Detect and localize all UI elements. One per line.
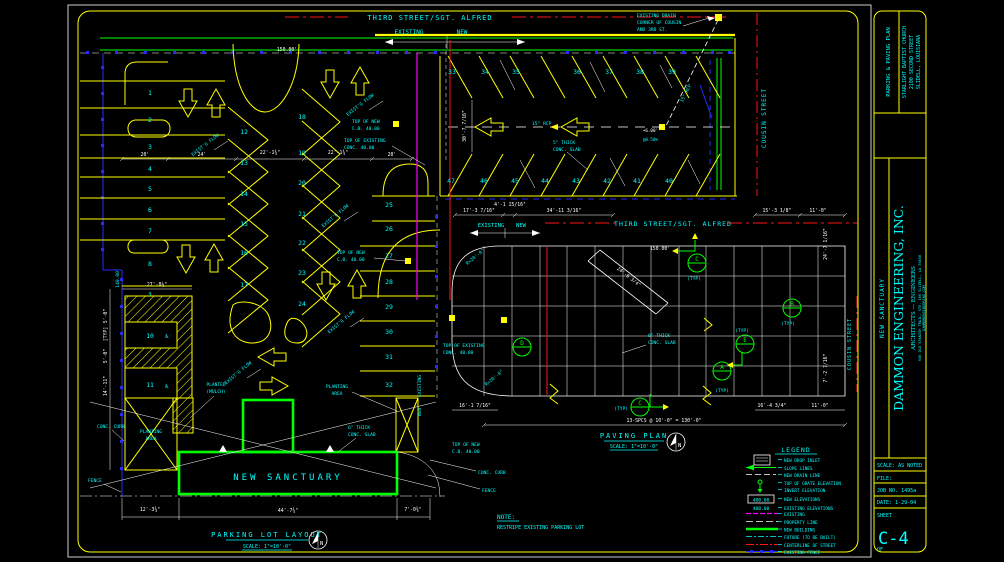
- legend: LEGEND 400.00 400.00 NEW DROP INLET: [746, 446, 841, 556]
- dim-label: 11'-0": [809, 208, 826, 214]
- slab-label: 5" THICK: [553, 140, 575, 146]
- north-arrow: N: [320, 541, 323, 547]
- stall-number: 47: [447, 177, 455, 185]
- firm-website: DAMMONENGINEERING.COM: [922, 284, 926, 330]
- scale-field: SCALE: AS NOTED: [877, 463, 922, 469]
- detail-d: D: [513, 338, 531, 356]
- dim-label: 11'-0": [811, 403, 828, 409]
- stall-number: 10: [146, 332, 154, 340]
- stall-number: 38: [636, 68, 644, 76]
- drawing-canvas[interactable]: THIRD STREET/SGT. ALFRED EXISTING NEW 15…: [0, 0, 1004, 562]
- street-label: THIRD STREET/SGT. ALFRED: [614, 220, 732, 228]
- north-arrow: N: [678, 443, 681, 449]
- stall-number: 20: [298, 179, 306, 187]
- dim-label: 16'-1 7/16": [459, 403, 491, 409]
- street-cousin-top: COUSIN STREET: [700, 13, 768, 196]
- elev-label: +6.00': [643, 128, 658, 133]
- note-body: RESTRIPE EXISTING PARKING LOT: [497, 525, 584, 531]
- drain-callout: EXISTING DRAIN CORNER OF COUSIN AND 3RD …: [637, 13, 722, 142]
- svg-text:A: A: [720, 364, 724, 371]
- dim-label: 5'-0": [103, 309, 109, 324]
- legend-title: LEGEND: [781, 446, 810, 454]
- date-field: DATE: 1-29-04: [877, 500, 916, 506]
- plan-title: PARKING LOT LAYOUT: [211, 531, 323, 539]
- stall-lines-left: [80, 81, 225, 286]
- dim-label: 13-SPCS @ 10'-0" = 130'-0": [626, 418, 701, 424]
- fence-marks-top: [86, 51, 731, 54]
- file-field: FILE:: [877, 476, 892, 482]
- stall-number: 36: [573, 68, 581, 76]
- flow-label: EXIST'G FLOW: [345, 92, 375, 117]
- curb-label: CONC. CURB: [478, 470, 506, 476]
- dim-label: 16'-4 3/4": [758, 403, 787, 409]
- stall-number: 14: [240, 190, 248, 198]
- cad-sheet: THIRD STREET/SGT. ALFRED EXISTING NEW 15…: [0, 0, 1004, 562]
- svg-text:R=20'-0": R=20'-0": [484, 369, 505, 388]
- stall-number: 45: [511, 177, 519, 185]
- stall-number: 40: [665, 177, 673, 185]
- legend-labels: NEW DROP INLET SLOPE LINES NEW DRAIN LIN…: [778, 458, 841, 556]
- svg-text:E: E: [743, 337, 747, 344]
- dim-label: 20': [388, 152, 397, 158]
- planting-label: PLANTING: [326, 384, 348, 390]
- stall-number: 44: [541, 177, 549, 185]
- elev-callout: TOP OF EXISTING: [344, 138, 386, 144]
- stall-number: 34: [481, 68, 489, 76]
- boundary-label: NEW: [417, 408, 423, 417]
- svg-text:D: D: [520, 340, 524, 347]
- stall-lines-right: [360, 196, 438, 398]
- stall-number: 42: [603, 177, 611, 185]
- street-cousin-lower: COUSIN STREET: [847, 296, 857, 392]
- stall-number: 21: [298, 210, 306, 218]
- sheet-number: C-4: [878, 529, 909, 549]
- svg-text:(TYP): (TYP): [614, 406, 628, 412]
- curb-label: CONC. CURB: [97, 424, 125, 430]
- dim-label: 44'-7¾": [278, 508, 298, 514]
- existing-label: EXISTING: [478, 223, 505, 229]
- stall-number: 37: [605, 68, 613, 76]
- flow-label: EXIST'G FLOW: [224, 360, 253, 386]
- elev-callout: TOP OF NEW: [352, 119, 380, 125]
- stall-number: 30: [385, 328, 393, 336]
- flow-label: EXIST'G FLOW: [321, 203, 350, 229]
- svg-text:(TYP): (TYP): [735, 328, 749, 334]
- client-city: SLIDELL, LOUISIANA: [916, 35, 922, 89]
- svg-text:(TYP): (TYP): [715, 388, 729, 394]
- elev-callout: CONC. 40.00: [344, 145, 375, 151]
- building-label: NEW SANCTUARY: [233, 473, 342, 483]
- fence-label: FENCE: [88, 478, 102, 484]
- stall-number: 16: [240, 249, 248, 257]
- handicap-icon: ♿: [165, 382, 169, 390]
- elev-callout: C.B. 40.00: [337, 257, 365, 263]
- svg-text:CONC. 40.00: CONC. 40.00: [443, 350, 474, 356]
- stall-number: 39: [668, 68, 676, 76]
- note-block: NOTE: RESTRIPE EXISTING PARKING LOT: [497, 514, 584, 531]
- street-label: THIRD STREET/SGT. ALFRED: [367, 14, 492, 22]
- legend-new-elev: 400.00: [753, 498, 770, 504]
- drain-note: CORNER OF COUSIN: [637, 20, 681, 26]
- dim-label: 27'-8½": [147, 281, 167, 288]
- plan-scale: SCALE: 1"=10'-0": [243, 544, 291, 550]
- svg-text:INVERT ELEVATION: INVERT ELEVATION: [784, 488, 826, 494]
- stall-number: 12: [240, 128, 248, 136]
- stall-number: 25: [385, 201, 393, 209]
- dim-label: 20': [141, 152, 150, 158]
- svg-text:R=20'-0": R=20'-0": [465, 248, 486, 267]
- client-name: STARLIGHT BAPTIST CHURCH: [902, 26, 908, 98]
- stall-number: 23: [298, 269, 306, 277]
- detail-b: B (TYP): [781, 299, 801, 327]
- svg-text:SLOPE LINES: SLOPE LINES: [784, 466, 813, 472]
- stall-number: 24: [298, 300, 306, 308]
- stall-number: 28: [385, 278, 393, 286]
- stall-number: 6: [148, 206, 152, 214]
- stall-number: 32: [385, 381, 393, 389]
- legend-exist-elev: 400.00: [753, 506, 770, 512]
- planting-label: PLANTING: [140, 429, 162, 435]
- street-third-top: THIRD STREET/SGT. ALFRED EXISTING NEW 15…: [80, 14, 737, 54]
- stall-number: 13: [240, 159, 248, 167]
- firm-type: ARCHITECTS — ENGINEERS: [911, 266, 917, 351]
- stall-number: 19: [298, 149, 306, 157]
- svg-text:NEW DRAIN LINE: NEW DRAIN LINE: [784, 473, 821, 479]
- planting-label: AREA: [145, 436, 156, 442]
- handicap-icon: ♿: [165, 332, 169, 340]
- stall-number: 17: [240, 281, 248, 289]
- detail-e: E (TYP): [735, 328, 754, 353]
- svg-text:CONC. SLAB: CONC. SLAB: [648, 340, 676, 346]
- dim-label: 34'-11 3/16": [547, 208, 582, 214]
- dim-label: 22'-1¾": [260, 150, 280, 156]
- stall-number: 2: [148, 116, 152, 124]
- stall-number: 31: [385, 353, 393, 361]
- svg-text:C.B. 40.00: C.B. 40.00: [452, 449, 480, 455]
- dim-label: 17'-3 7/16": [463, 208, 495, 214]
- elev-callout: TOP OF NEW: [337, 250, 365, 256]
- detail-markers: C (TYP) B (TYP) D E (TYP) A (TYP): [513, 233, 801, 416]
- title-block: PARKING & PAVING PLAN STARLIGHT BAPTIST …: [874, 11, 926, 553]
- stall-number: 46: [480, 177, 488, 185]
- dim-label: 140.00': [115, 268, 121, 287]
- stall-number: 15: [240, 220, 248, 228]
- stall-number: 22: [298, 239, 306, 247]
- dim-label: 24'-7 1/16": [823, 228, 829, 260]
- dim-label: 14'-11": [103, 376, 109, 396]
- new-sanctuary-building: NEW SANCTUARY: [179, 400, 440, 497]
- dim-label: [TYP]: [103, 327, 109, 341]
- stall-number: 29: [385, 303, 393, 311]
- svg-text:NEW DROP INLET: NEW DROP INLET: [784, 458, 821, 464]
- stall-number: 7: [148, 227, 152, 235]
- svg-text:C: C: [638, 400, 642, 407]
- planted-label: (MULCH): [206, 389, 225, 395]
- dim-label: 4'-1 15/16": [494, 202, 526, 208]
- drain-note: EXISTING DRAIN: [637, 13, 676, 19]
- stall-number: 5: [148, 185, 152, 193]
- detail-c1: C (TYP): [687, 254, 706, 282]
- new-label: NEW: [516, 223, 527, 229]
- stall-number: 26: [385, 225, 393, 233]
- fence-label: FENCE: [482, 488, 496, 494]
- stall-number: 9: [148, 292, 151, 298]
- detail-a: A (TYP): [713, 362, 731, 394]
- firm-name: DAMMON ENGINEERING, INC.: [891, 205, 906, 411]
- svg-text:TOP OF GRATE ELEVATION: TOP OF GRATE ELEVATION: [784, 481, 841, 487]
- plan1-title: PARKING LOT LAYOUT SCALE: 1"=10'-0" N: [211, 531, 327, 550]
- stall-number: 18: [298, 113, 306, 121]
- traffic-arrows: [177, 67, 369, 395]
- svg-text:(TYP): (TYP): [687, 276, 701, 282]
- stall-number: 33: [448, 68, 456, 76]
- dim-label: 15'-3 1/8": [763, 208, 792, 214]
- slope-label: @0.50%: [643, 137, 659, 142]
- slab-label: 6" THICK: [348, 425, 370, 431]
- dim-label: 150.00': [650, 246, 670, 252]
- elev-callout: C.B. 40.00: [352, 126, 380, 132]
- svg-text:(TYP): (TYP): [781, 321, 795, 327]
- svg-text:NEW BUILDING: NEW BUILDING: [784, 528, 815, 534]
- slab-label: CONC. SLAB: [348, 432, 376, 438]
- drawing-title: NEW SANCTUARY: [879, 278, 886, 338]
- project-title: PARKING & PAVING PLAN: [886, 27, 892, 97]
- sheet-label: SHEET: [877, 513, 892, 519]
- stall-number: 3: [148, 143, 152, 151]
- svg-text:NEW ELEVATIONS: NEW ELEVATIONS: [784, 497, 821, 503]
- svg-text:CENTERLINE OF STREET: CENTERLINE OF STREET: [784, 543, 836, 549]
- detail-c2: C (TYP): [614, 398, 649, 416]
- stall-number: 35: [512, 68, 520, 76]
- svg-text:EXISTING: EXISTING: [784, 512, 805, 518]
- svg-text:6" THICK: 6" THICK: [648, 333, 670, 339]
- plan-scale: SCALE: 1"=10'-0": [610, 444, 658, 450]
- plan2-title: PAVING PLAN SCALE: 1"=10'-0" N: [600, 432, 685, 451]
- dim-150: 150.00': [277, 47, 297, 53]
- svg-text:EXISTING ELEVATIONS: EXISTING ELEVATIONS: [784, 506, 834, 512]
- boundary-label: EXISTING: [417, 375, 423, 397]
- svg-text:EXISTING FENCE: EXISTING FENCE: [784, 550, 821, 556]
- dim-label: 5'-0": [103, 349, 109, 364]
- dim-label: 12'-3¾": [140, 507, 160, 513]
- stall-stripes-top: [448, 56, 720, 98]
- svg-text:TOP OF EXISTING: TOP OF EXISTING: [443, 343, 485, 349]
- svg-text:C: C: [695, 256, 699, 263]
- stall-number: 11: [146, 381, 154, 389]
- svg-text:PROPERTY LINE: PROPERTY LINE: [784, 520, 818, 526]
- stall-number: 41: [633, 177, 641, 185]
- top-dimensions: 17'-3 7/16" 4'-1 15/16" 34'-11 3/16" 15'…: [453, 202, 847, 217]
- sheet-of: OF: [877, 547, 883, 553]
- plan-title: PAVING PLAN: [600, 432, 668, 440]
- planting-label: AREA: [331, 391, 342, 397]
- dim-label: 7'-2 7/16": [823, 353, 829, 382]
- client-address: 2100 SECOND STREET: [909, 35, 915, 89]
- svg-text:B: B: [790, 301, 794, 308]
- note-heading: NOTE:: [497, 514, 515, 521]
- svg-text:TOP OF NEW: TOP OF NEW: [452, 442, 480, 448]
- joint-grid: [452, 246, 845, 396]
- rcp-label: 15" RCP: [532, 121, 552, 127]
- parking-layout: NEW SANCTUARY 20' 24' 22'-1¾" 22'-1¾" 20…: [80, 44, 506, 550]
- planted-label: PLANTED: [206, 382, 226, 388]
- legend-symbols: 400.00 400.00: [746, 455, 778, 553]
- stall-number: 4: [148, 165, 152, 173]
- stall-number: 8: [148, 260, 152, 268]
- stall-stripes-bottom: [448, 154, 720, 196]
- job-field: JOB NO. 1495a: [877, 488, 916, 494]
- stall-number: 43: [572, 177, 580, 185]
- restripe-marks: [500, 60, 700, 188]
- dim-label: 7'-0¾": [404, 507, 421, 513]
- svg-text:FUTURE (TO BE BUILT): FUTURE (TO BE BUILT): [784, 535, 836, 541]
- stall-number: 27: [385, 252, 393, 260]
- dim-label: 30'-7 7/16": [462, 110, 468, 142]
- paving-plan: THIRD STREET/SGT. ALFRED EXISTING NEW 17…: [443, 202, 857, 455]
- stall-number: 1: [148, 89, 152, 97]
- street-label: COUSIN STREET: [761, 88, 768, 148]
- drain-note: AND 3RD ST.: [637, 27, 667, 33]
- svg-text:COUSIN STREET: COUSIN STREET: [847, 318, 853, 370]
